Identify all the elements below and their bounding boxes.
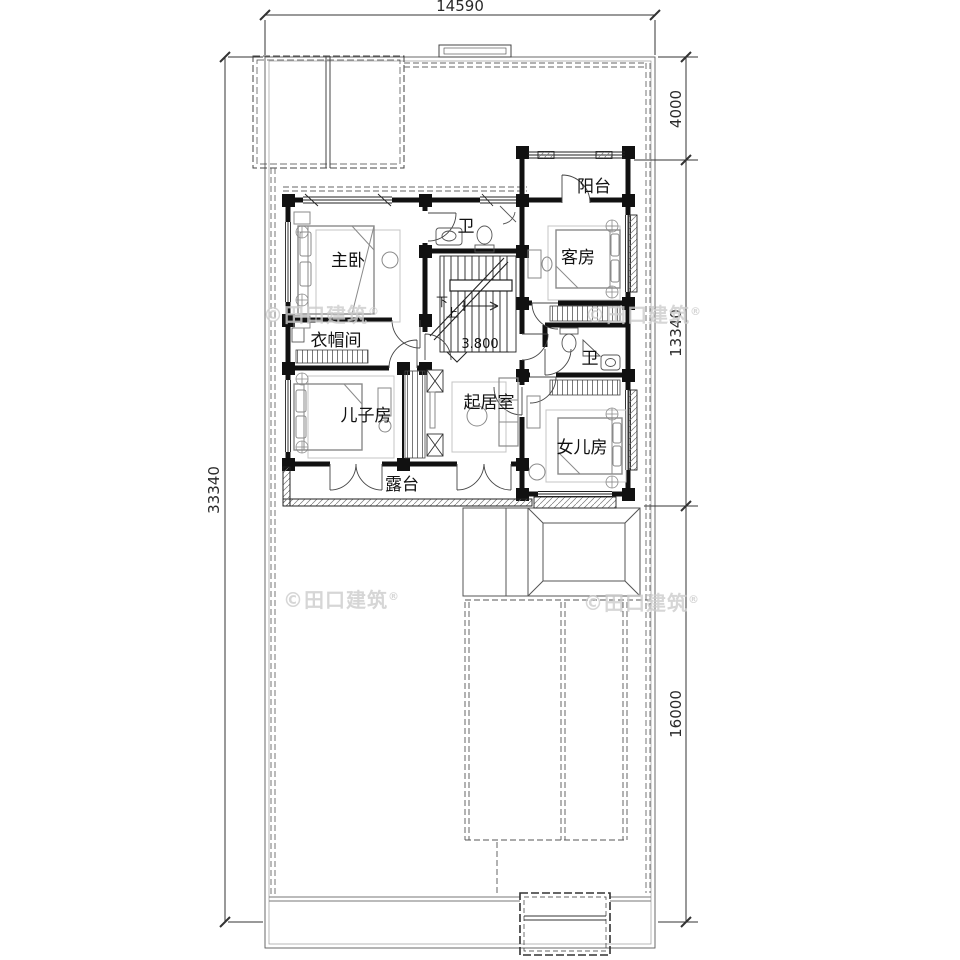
room-label-master-bedroom: 主卧 xyxy=(331,251,365,271)
floor-plan-drawing: 14590 33340 4000 13340 16000 xyxy=(0,0,960,960)
dim-top-14590: 14590 xyxy=(436,0,484,15)
room-label-guest-room: 客房 xyxy=(561,248,595,268)
watermark-4: ©田口建筑® xyxy=(583,591,700,615)
room-label-daughter-room: 女儿房 xyxy=(557,438,608,458)
room-label-son-room: 儿子房 xyxy=(341,406,392,426)
balcony-railing xyxy=(528,152,625,159)
dim-left-33340: 33340 xyxy=(205,466,223,514)
entry-porch-box xyxy=(520,893,610,955)
room-label-bath-1: 卫 xyxy=(458,217,475,237)
watermark-3: ©田口建筑® xyxy=(283,588,400,612)
room-label-living-room: 起居室 xyxy=(464,393,515,413)
room-labels: 阳台 卫 主卧 客房 衣帽间 卫 儿子房 起居室 女儿房 露台 xyxy=(311,177,612,495)
room-label-balcony: 阳台 xyxy=(577,177,611,197)
watermark-2: ©田口建筑® xyxy=(585,303,702,327)
floor-plan-sheet: 14590 33340 4000 13340 16000 xyxy=(0,0,960,960)
elevation-marker xyxy=(447,352,509,362)
stair-labels: 下 上 xyxy=(436,295,458,320)
porch-hip-roof xyxy=(463,508,640,596)
room-label-bath-2: 卫 xyxy=(582,349,599,369)
lower-floor-outline xyxy=(465,600,650,893)
dim-right-16000: 16000 xyxy=(667,690,685,738)
dim-right-4000: 4000 xyxy=(667,90,685,128)
room-label-cloakroom: 衣帽间 xyxy=(311,331,362,351)
elevation-value: 3.800 xyxy=(461,337,498,352)
garage-roof-outline xyxy=(253,56,404,168)
watermark-1: ©田口建筑® xyxy=(263,303,380,327)
dimension-labels: 14590 33340 4000 13340 16000 xyxy=(205,0,685,738)
stair-up-label: 上 xyxy=(446,306,458,320)
chimney-box xyxy=(439,45,511,57)
room-label-terrace: 露台 xyxy=(385,475,419,495)
